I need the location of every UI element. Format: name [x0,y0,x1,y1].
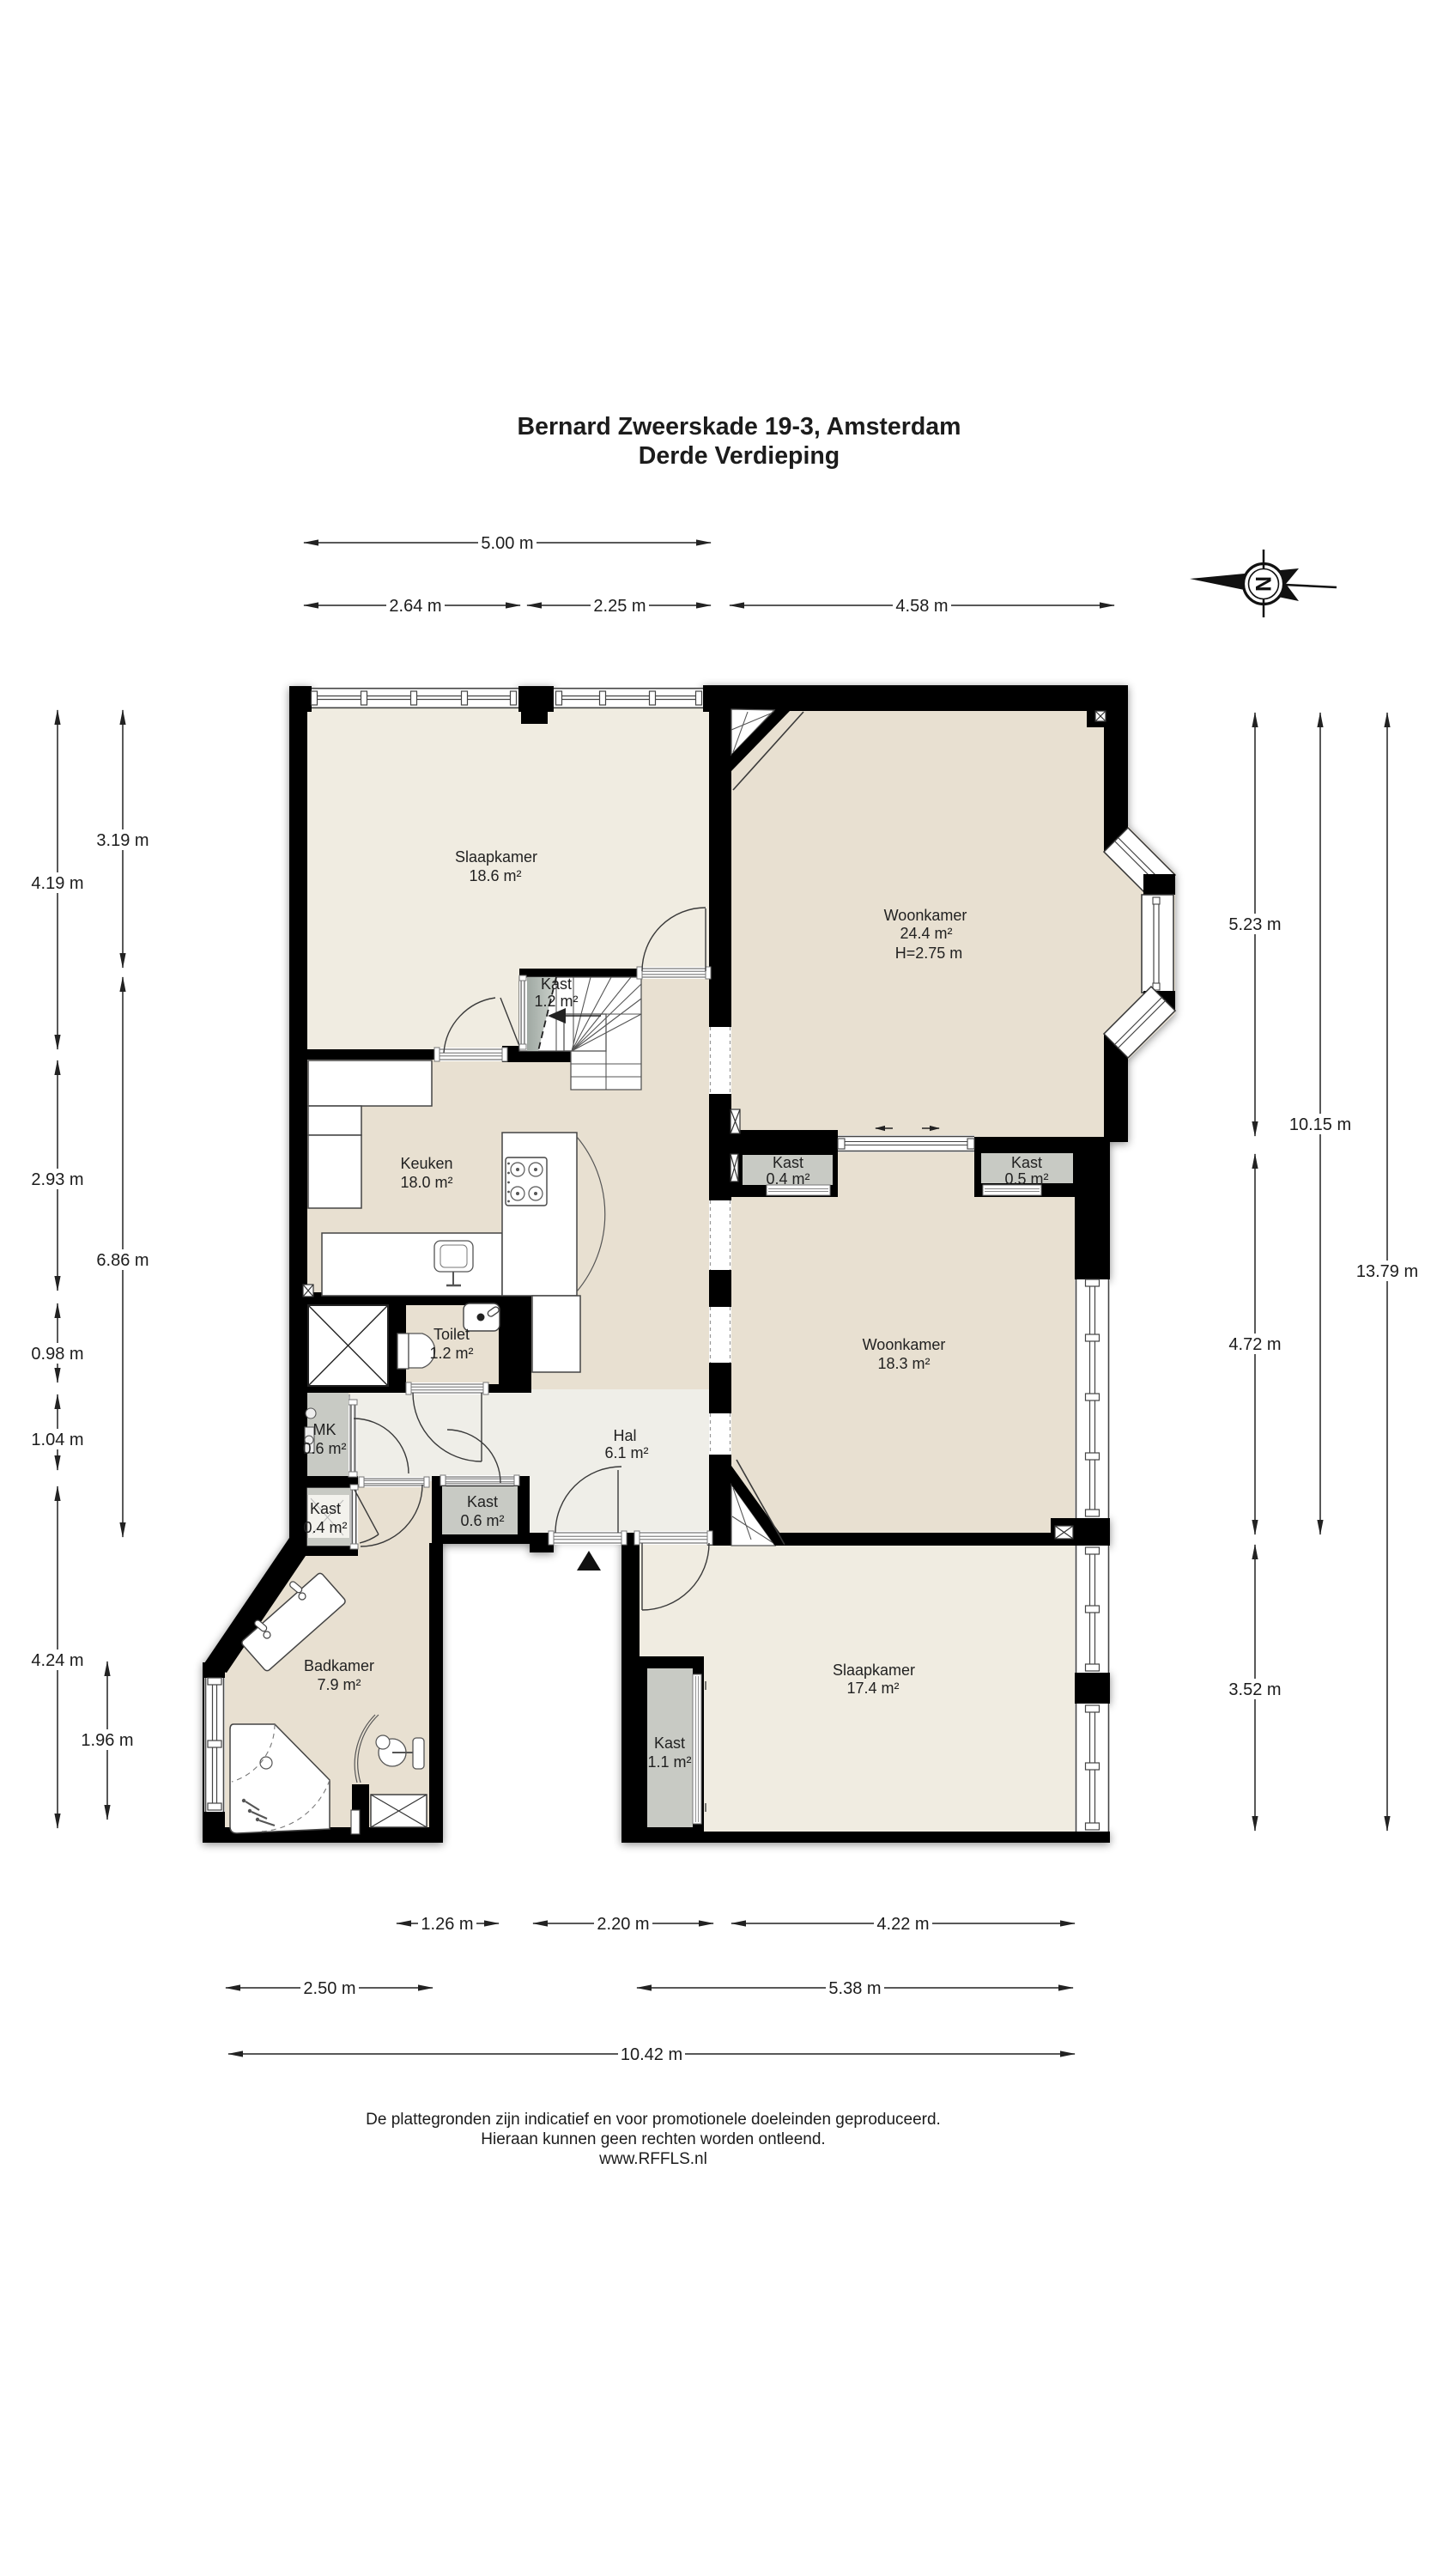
svg-text:24.4 m²: 24.4 m² [900,925,952,942]
svg-text:1.2 m²: 1.2 m² [534,993,578,1010]
svg-text:5.00 m: 5.00 m [481,534,533,553]
svg-text:18.6 m²: 18.6 m² [469,867,521,884]
svg-text:Slaapkamer: Slaapkamer [833,1662,915,1679]
svg-text:3.52 m: 3.52 m [1228,1680,1281,1699]
svg-text:4.72 m: 4.72 m [1228,1335,1281,1354]
svg-text:H=2.75 m: H=2.75 m [895,945,963,962]
svg-text:Hal: Hal [613,1427,636,1444]
svg-text:2.25 m: 2.25 m [593,597,646,616]
svg-text:4.22 m: 4.22 m [876,1915,929,1934]
svg-text:1.04 m: 1.04 m [31,1431,83,1449]
svg-text:Kast: Kast [1011,1154,1042,1171]
svg-text:Badkamer: Badkamer [304,1657,374,1674]
svg-text:0.4 m²: 0.4 m² [303,1519,347,1536]
svg-text:10.15 m: 10.15 m [1289,1115,1351,1134]
svg-text:Kast: Kast [310,1500,341,1517]
svg-text:Kast: Kast [541,975,572,993]
svg-text:4.58 m: 4.58 m [895,597,948,616]
svg-text:6.1 m²: 6.1 m² [604,1444,648,1461]
svg-text:2.20 m: 2.20 m [597,1915,649,1934]
svg-text:2.50 m: 2.50 m [303,1979,355,1998]
svg-text:Kast: Kast [654,1735,685,1752]
svg-text:0.98 m: 0.98 m [31,1345,83,1364]
svg-text:Kast: Kast [773,1154,803,1171]
svg-text:Bernard Zweerskade 19-3, Amste: Bernard Zweerskade 19-3, Amsterdam [518,413,961,440]
svg-text:2.93 m: 2.93 m [31,1170,83,1189]
svg-text:Derde Verdieping: Derde Verdieping [639,442,840,470]
svg-text:Hieraan kunnen geen rechten wo: Hieraan kunnen geen rechten worden ontle… [481,2130,825,2148]
svg-text:5.23 m: 5.23 m [1228,915,1281,934]
svg-text:MK: MK [313,1421,336,1438]
svg-text:0.4 m²: 0.4 m² [766,1170,809,1188]
svg-text:Woonkamer: Woonkamer [863,1336,946,1353]
svg-text:0.6 m²: 0.6 m² [302,1440,346,1457]
svg-text:2.64 m: 2.64 m [389,597,441,616]
svg-text:www.RFFLS.nl: www.RFFLS.nl [598,2150,707,2168]
svg-text:Keuken: Keuken [400,1155,452,1172]
svg-text:1.26 m: 1.26 m [421,1915,473,1934]
svg-text:7.9 m²: 7.9 m² [317,1676,361,1693]
svg-text:10.42 m: 10.42 m [621,2045,682,2064]
svg-text:Kast: Kast [467,1493,498,1510]
svg-text:6.86 m: 6.86 m [96,1251,149,1270]
svg-text:13.79 m: 13.79 m [1356,1262,1418,1281]
svg-text:1.1 m²: 1.1 m² [647,1753,691,1771]
svg-text:Toilet: Toilet [433,1326,470,1343]
svg-text:De plattegronden zijn indicati: De plattegronden zijn indicatief en voor… [366,2111,941,2129]
svg-text:4.24 m: 4.24 m [31,1651,83,1670]
svg-text:1.96 m: 1.96 m [81,1731,133,1750]
svg-text:4.19 m: 4.19 m [31,874,83,893]
svg-text:0.6 m²: 0.6 m² [460,1512,504,1529]
svg-text:Woonkamer: Woonkamer [884,907,967,924]
svg-text:3.19 m: 3.19 m [96,831,149,850]
svg-text:N: N [1252,576,1276,592]
svg-text:18.3 m²: 18.3 m² [877,1355,930,1372]
svg-text:5.38 m: 5.38 m [828,1979,881,1998]
svg-text:1.2 m²: 1.2 m² [429,1345,473,1362]
svg-text:18.0 m²: 18.0 m² [400,1174,452,1191]
svg-text:0.5 m²: 0.5 m² [1004,1170,1048,1188]
svg-text:17.4 m²: 17.4 m² [846,1680,899,1697]
svg-text:Slaapkamer: Slaapkamer [455,848,537,866]
